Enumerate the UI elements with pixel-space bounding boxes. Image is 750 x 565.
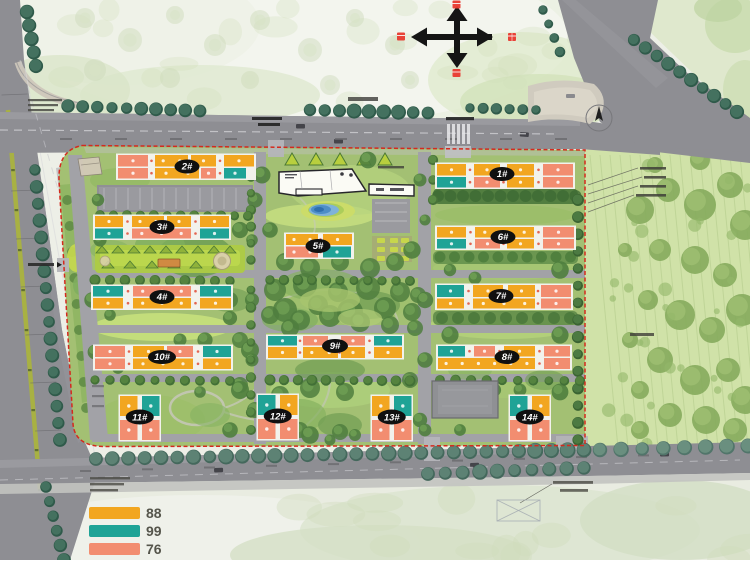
svg-text:1#: 1# (497, 169, 508, 180)
svg-text:11#: 11# (132, 412, 148, 423)
svg-text:3#: 3# (157, 222, 168, 233)
svg-text:8#: 8# (502, 352, 513, 363)
svg-text:10#: 10# (154, 352, 171, 363)
svg-text:6#: 6# (498, 232, 509, 243)
svg-text:88: 88 (146, 505, 162, 521)
svg-text:5#: 5# (313, 241, 324, 252)
svg-text:4#: 4# (156, 292, 168, 303)
svg-text:14#: 14# (522, 412, 539, 423)
svg-text:2#: 2# (181, 162, 193, 173)
svg-text:13#: 13# (384, 412, 401, 423)
svg-text:12#: 12# (270, 411, 287, 422)
svg-text:99: 99 (146, 523, 162, 539)
svg-text:7#: 7# (496, 291, 507, 302)
svg-text:9#: 9# (330, 341, 341, 352)
svg-text:76: 76 (146, 541, 162, 557)
